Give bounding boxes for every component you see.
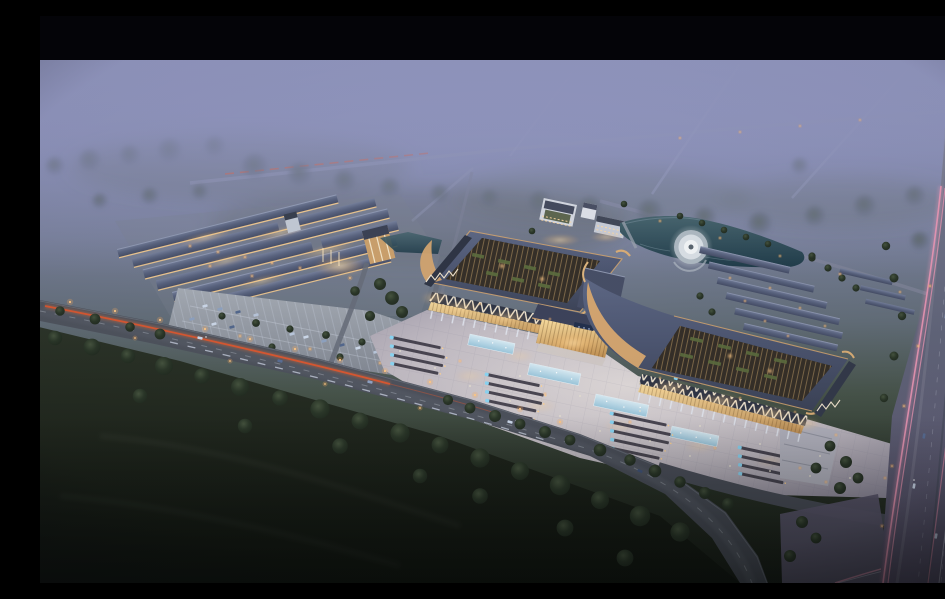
rendering-canvas bbox=[40, 16, 945, 583]
letterbox-top-bar bbox=[40, 16, 945, 60]
vignette bbox=[40, 60, 945, 583]
aerial-rendering: Dusk aerial rendering of a large market … bbox=[40, 16, 945, 583]
